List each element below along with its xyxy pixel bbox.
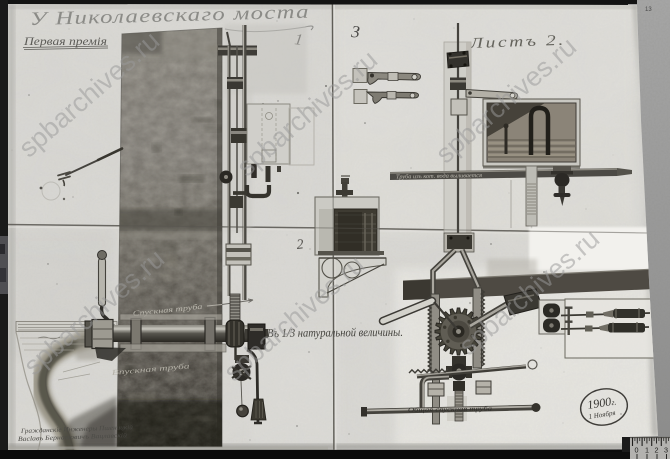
svg-text:Общая спускная труба: Общая спускная труба: [408, 406, 492, 414]
svg-text:0: 0: [635, 446, 639, 455]
svg-text:3: 3: [664, 446, 668, 455]
svg-text:3: 3: [350, 22, 361, 42]
svg-text:2: 2: [655, 446, 659, 455]
svg-text:1: 1: [645, 446, 649, 455]
svg-text:13: 13: [645, 7, 652, 13]
